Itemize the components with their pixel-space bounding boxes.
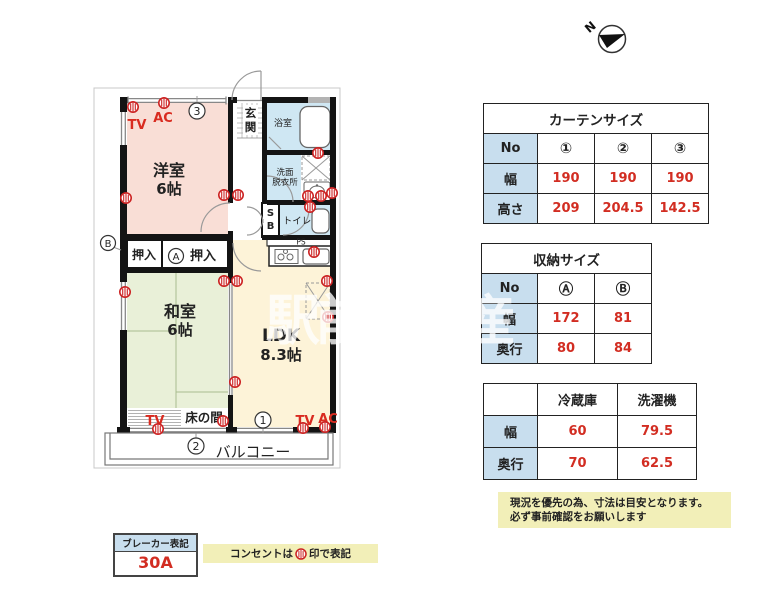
tokonoma-label: 床の間 [185, 410, 223, 425]
marker-1: 1 [260, 414, 267, 427]
shoebox-label: B [267, 221, 275, 232]
shoebox-door-arc [247, 219, 263, 235]
marker-3: 3 [194, 105, 201, 118]
curtain-col-header: No [484, 134, 538, 164]
appliance-depth-fridge: 70 [538, 448, 618, 480]
disclaimer-line-1: 現況を優先の為、寸法は目安となります。 [510, 496, 731, 510]
disclaimer-line-2: 必ず事前確認をお願いします [510, 510, 731, 524]
appliance-col-fridge: 冷蔵庫 [538, 384, 618, 416]
western-room-size: 6帖 [156, 180, 181, 198]
outlet-legend-post: 印で表記 [309, 546, 351, 561]
storage-depth-b: 84 [595, 334, 652, 364]
curtain-width-3: 190 [652, 164, 709, 194]
outlet-legend-pre: コンセントは [230, 546, 293, 561]
storage-width-b: 81 [595, 304, 652, 334]
appliance-row-depth-label: 奥行 [484, 448, 538, 480]
ps-label: PS [296, 238, 306, 247]
genkan-label: 関 [245, 120, 257, 134]
storage-size-table: 収納サイズ No Ⓐ Ⓑ 幅 172 81 奥行 80 84 [481, 243, 652, 364]
toilet-icon [312, 209, 329, 233]
outlet-icon [121, 193, 131, 203]
storage-width-a: 172 [538, 304, 595, 334]
outlet-icon [232, 276, 242, 286]
curtain-table-title: カーテンサイズ [484, 104, 709, 134]
disclaimer-note: 現況を優先の為、寸法は目安となります。 必ず事前確認をお願いします [498, 492, 731, 528]
shoebox-door-arc [247, 207, 263, 223]
outlet-icon [218, 416, 228, 426]
outlet-icon [298, 423, 308, 433]
tv-label: TV [128, 118, 147, 133]
closet-right-label: 押入 [190, 248, 216, 264]
balcony-label: バルコニー [216, 443, 291, 461]
outlet-icon [303, 191, 313, 201]
outlet-icon [327, 188, 337, 198]
curtain-col-2: ② [595, 134, 652, 164]
japanese-room-label: 和室 [164, 302, 196, 321]
outlet-icon [159, 98, 169, 108]
outlet-icon [313, 148, 323, 158]
appliance-depth-washer: 62.5 [618, 448, 697, 480]
curtain-row-height-label: 高さ [484, 194, 538, 224]
outlet-icon [153, 424, 163, 434]
marker-a: A [173, 252, 180, 263]
shoebox-label: S [267, 208, 274, 219]
washroom-label: 脱衣所 [272, 177, 298, 188]
outlet-icon [295, 548, 307, 560]
appliance-corner-cell [484, 384, 538, 416]
appliance-col-washer: 洗濯機 [618, 384, 697, 416]
north-label: N [582, 19, 599, 36]
storage-col-a: Ⓐ [538, 274, 595, 304]
curtain-height-1: 209 [538, 194, 595, 224]
curtain-height-2: 204.5 [595, 194, 652, 224]
ac-label: AC [153, 111, 173, 126]
marker-b: B [105, 239, 112, 250]
outlet-icon [120, 287, 130, 297]
western-room-label: 洋室 [153, 161, 185, 180]
outlet-icon [128, 102, 138, 112]
toilet-label: トイレ [283, 216, 312, 227]
floorplan-page: 洋室 6帖 和室 6帖 LDK 8.3帖 玄 関 浴室 洗面 脱衣所 トイレ S… [0, 0, 780, 600]
breaker-box: ブレーカー表記 30A [113, 533, 198, 577]
outlet-icon [219, 276, 229, 286]
outlet-legend: コンセントは 印で表記 [203, 544, 378, 563]
curtain-width-1: 190 [538, 164, 595, 194]
appliance-width-washer: 79.5 [618, 416, 697, 448]
storage-depth-a: 80 [538, 334, 595, 364]
outlet-icon [323, 312, 333, 322]
japanese-room-size: 6帖 [167, 321, 192, 339]
outlet-icon [309, 247, 319, 257]
storage-col-header: No [482, 274, 538, 304]
ldk-size: 8.3帖 [260, 346, 302, 364]
bath-label: 浴室 [274, 117, 292, 129]
bathtub-icon [300, 107, 330, 148]
storage-table-title: 収納サイズ [482, 244, 652, 274]
curtain-col-1: ① [538, 134, 595, 164]
genkan-label: 玄 [245, 106, 257, 120]
closet-left-label: 押入 [132, 247, 156, 262]
outlet-icon [305, 202, 315, 212]
compass: N [582, 19, 625, 53]
storage-row-width-label: 幅 [482, 304, 538, 334]
breaker-value: 30A [115, 552, 196, 575]
curtain-row-width-label: 幅 [484, 164, 538, 194]
outlet-icon [322, 276, 332, 286]
marker-2: 2 [193, 440, 200, 453]
washroom-label: 洗面 [276, 167, 294, 178]
entrance-door-arc [232, 71, 261, 100]
curtain-size-table: カーテンサイズ No ① ② ③ 幅 190 190 190 高さ 209 20… [483, 103, 709, 224]
outlet-icon [230, 377, 240, 387]
outlet-icon [219, 190, 229, 200]
storage-row-depth-label: 奥行 [482, 334, 538, 364]
outlet-icon [316, 191, 326, 201]
room-japanese [127, 272, 228, 408]
curtain-width-2: 190 [595, 164, 652, 194]
outlet-icon [233, 190, 243, 200]
appliance-row-width-label: 幅 [484, 416, 538, 448]
ldk-label: LDK [262, 326, 301, 346]
outlet-icon [320, 422, 330, 432]
appliance-width-fridge: 60 [538, 416, 618, 448]
bath-window [308, 97, 331, 103]
storage-col-b: Ⓑ [595, 274, 652, 304]
curtain-height-3: 142.5 [652, 194, 709, 224]
breaker-label: ブレーカー表記 [115, 535, 196, 552]
curtain-col-3: ③ [652, 134, 709, 164]
appliance-size-table: 冷蔵庫 洗濯機 幅 60 79.5 奥行 70 62.5 [483, 383, 697, 480]
